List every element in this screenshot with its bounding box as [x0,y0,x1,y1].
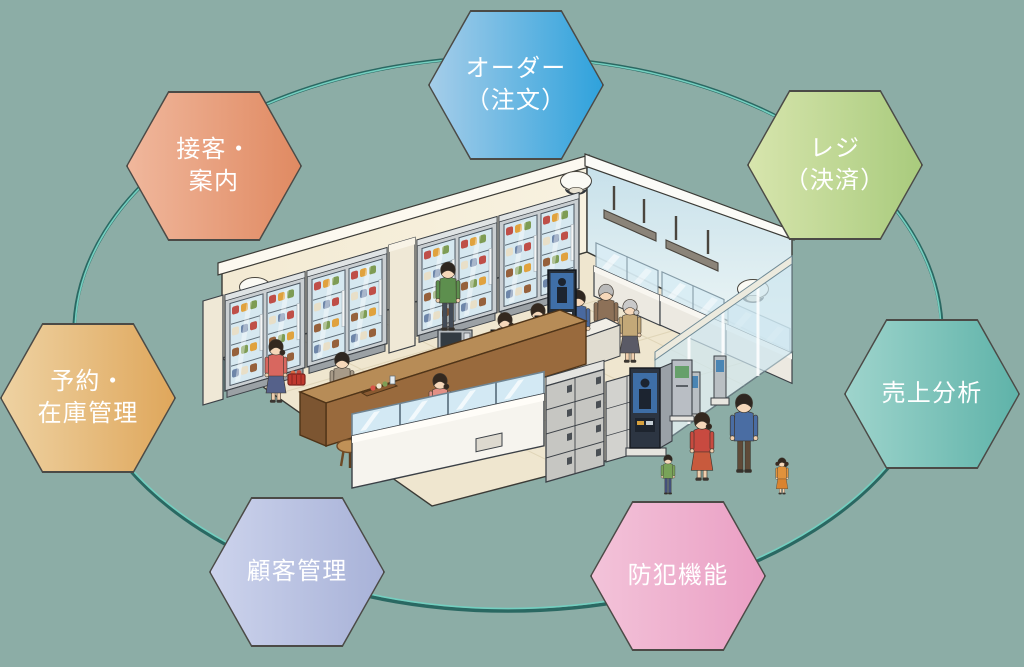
kiosk-machine [626,363,672,456]
family-girl [775,458,788,495]
hexagon-security-label: 防犯機能 [628,560,729,592]
hexagon-reservation-inventory-label: 予約・在庫管理 [38,366,139,429]
security-gate [711,356,729,405]
hexagon-customer-management-label: 顧客管理 [247,556,348,588]
hexagon-sales-analysis-label: 売上分析 [882,378,983,410]
hexagon-register-payment-label: レジ（決済） [785,133,886,196]
atm-machine [670,360,694,421]
family-boy [661,455,675,495]
smart-store-diagram: オーダー（注文） レジ（決済） 売上分析 防犯機能 顧客管理 予約・在庫管理 接… [0,0,1024,667]
hexagon-customer-service-label: 接客・案内 [176,134,252,197]
lockers [546,360,604,482]
hexagon-order-label: オーダー（注文） [466,53,567,116]
family-mother [690,412,714,480]
family-father [730,394,758,472]
